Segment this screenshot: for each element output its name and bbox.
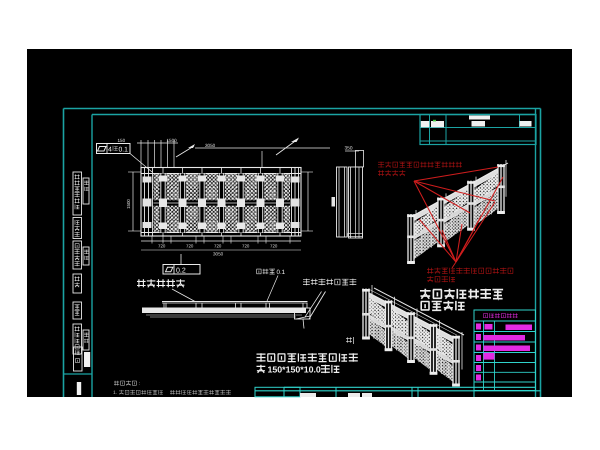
svg-text:1.: 1. (113, 390, 117, 396)
svg-text:0.2: 0.2 (176, 267, 186, 274)
svg-text:0.1: 0.1 (277, 269, 286, 276)
svg-text:3050: 3050 (205, 143, 216, 148)
svg-text:150*150*10.0: 150*150*10.0 (268, 365, 321, 375)
svg-text:720: 720 (214, 244, 222, 249)
svg-text:350: 350 (345, 146, 353, 152)
svg-text:720: 720 (186, 244, 194, 249)
svg-text:1500: 1500 (126, 199, 131, 209)
svg-text:1500: 1500 (167, 138, 178, 143)
svg-text:720: 720 (242, 244, 250, 249)
svg-text:720: 720 (158, 244, 166, 249)
svg-text:4: 4 (108, 147, 112, 154)
svg-text::: : (139, 381, 140, 387)
svg-text:150: 150 (118, 138, 126, 143)
svg-text:,: , (497, 291, 500, 302)
svg-text:0.1: 0.1 (119, 147, 129, 154)
svg-text:720: 720 (270, 244, 278, 249)
svg-text:3050: 3050 (213, 252, 224, 257)
